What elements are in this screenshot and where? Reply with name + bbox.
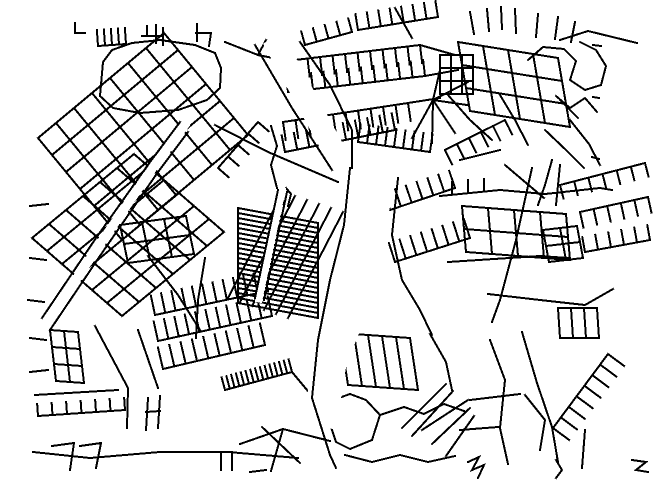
street-map-canvas <box>0 0 655 484</box>
street-map-page <box>0 0 655 484</box>
